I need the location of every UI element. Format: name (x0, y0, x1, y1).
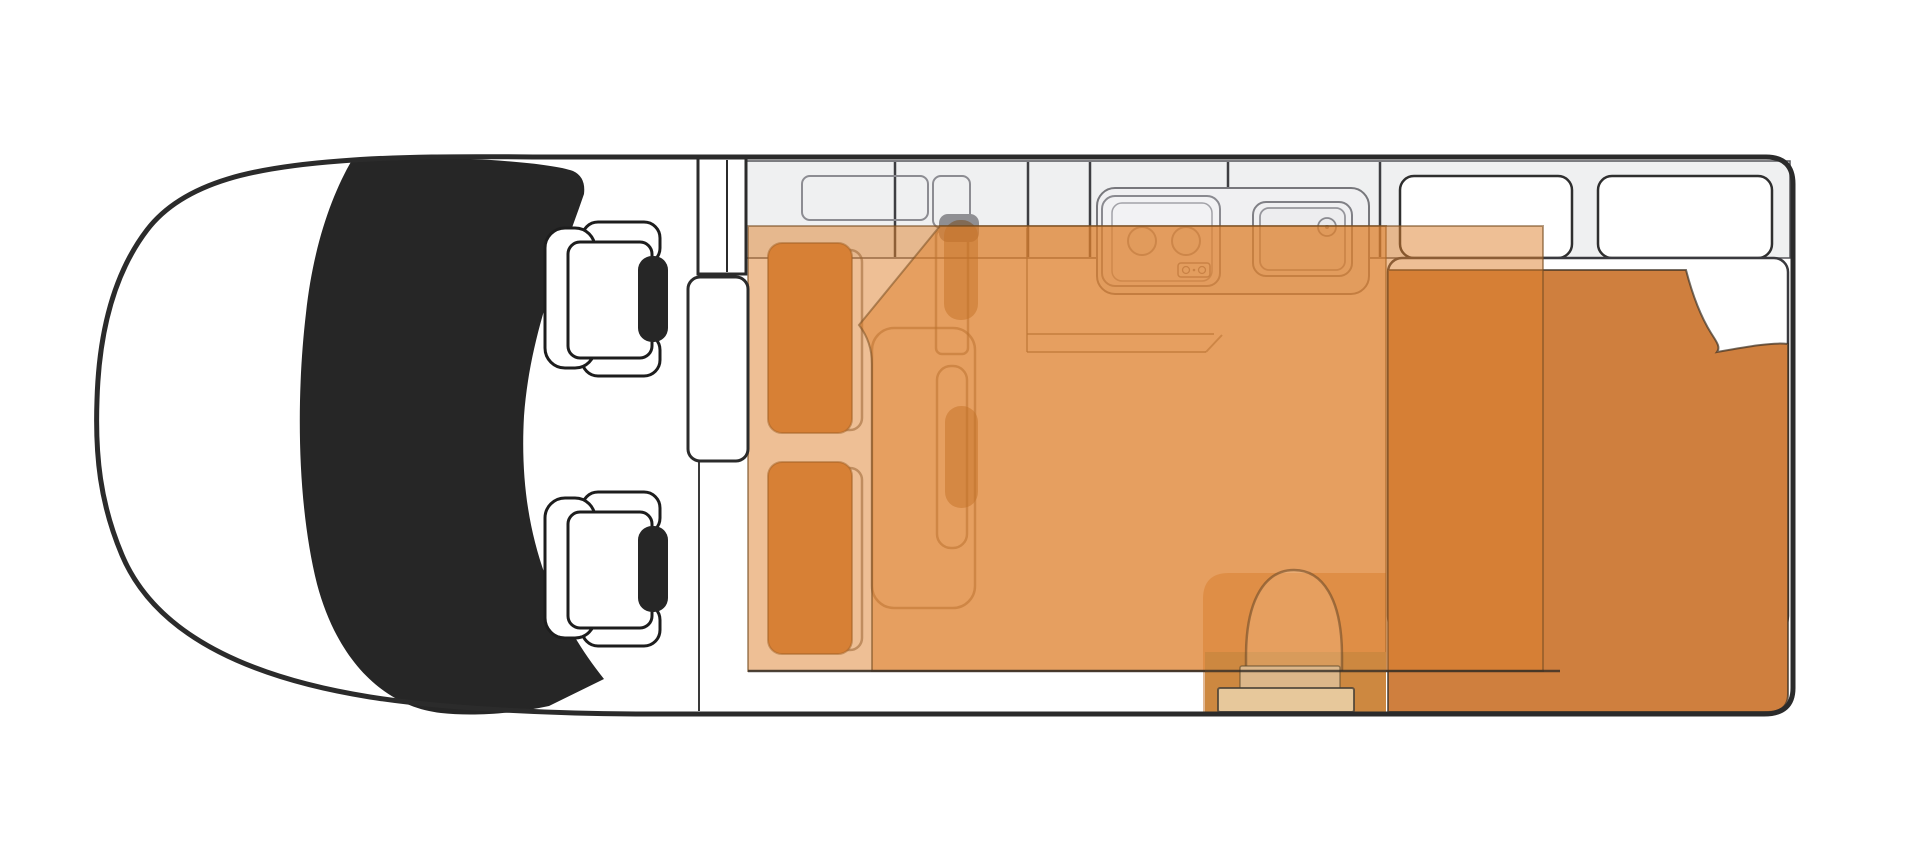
wardrobe-cabinet (688, 277, 748, 461)
entry-step-upper (1240, 666, 1340, 690)
campervan-floorplan-diagram (0, 0, 1920, 859)
floorplan-canvas (0, 0, 1920, 859)
seat-1-headrest (638, 256, 668, 342)
rear-window-2 (1598, 176, 1772, 258)
divider-wall (698, 158, 746, 274)
seat-2-headrest (638, 526, 668, 612)
entry-step-lower (1218, 688, 1354, 712)
bed-overlay-rear (859, 226, 1543, 671)
